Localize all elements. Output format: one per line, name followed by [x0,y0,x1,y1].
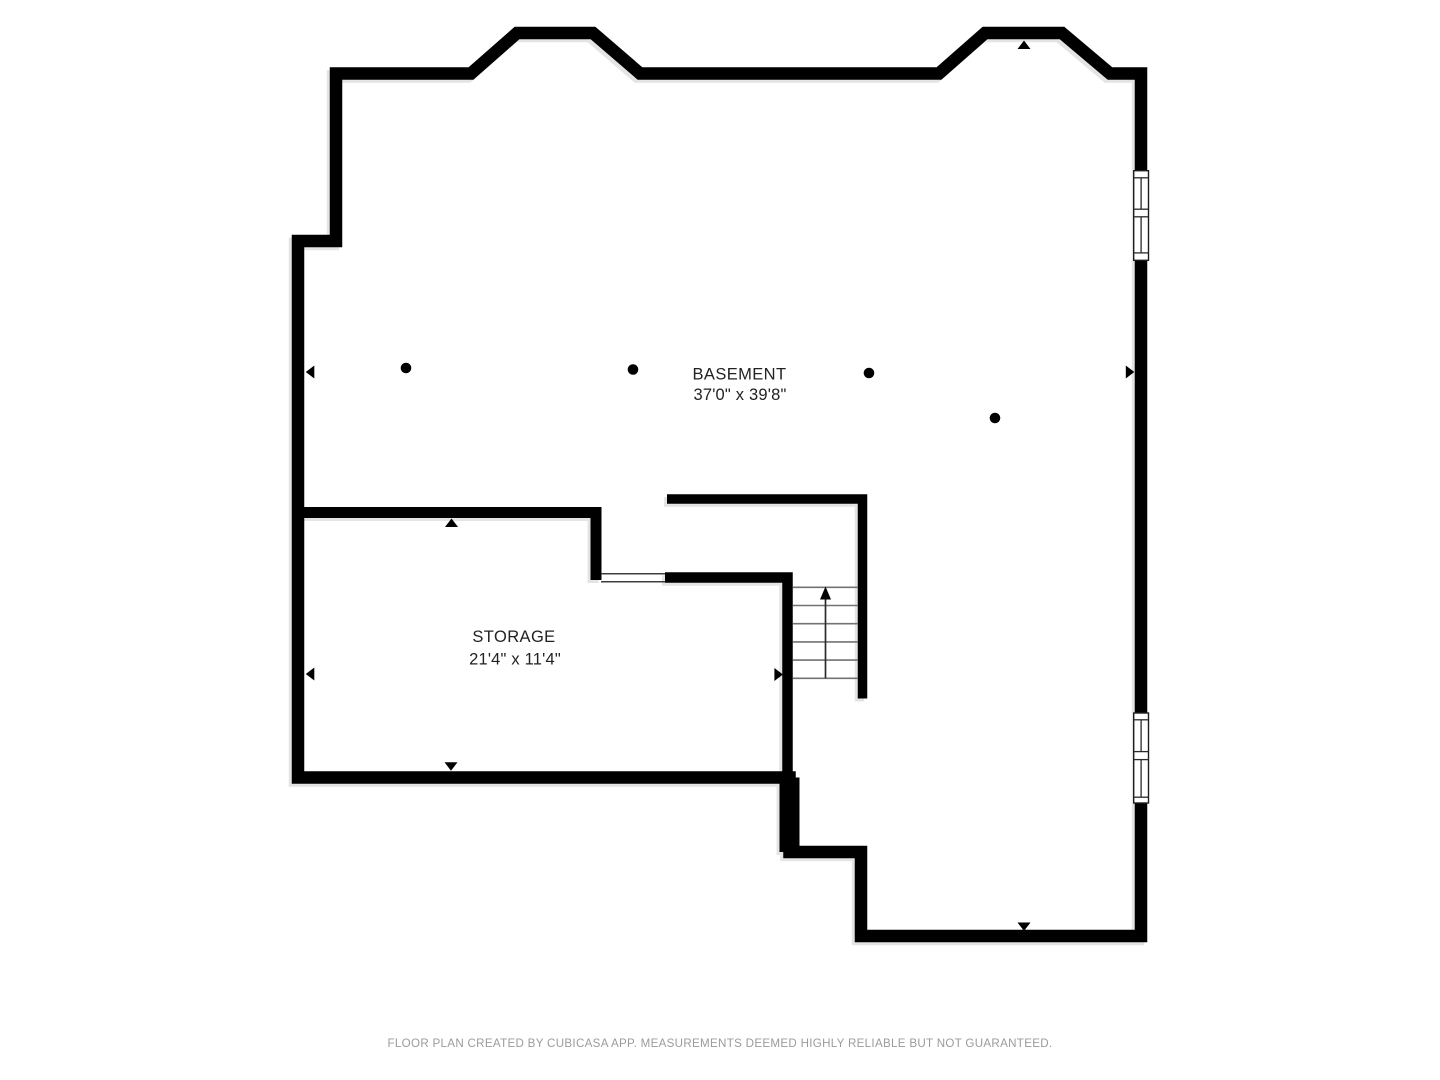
measure-arrow-down-icon [445,762,458,771]
window-icon [1134,713,1149,803]
window-icon [1134,171,1149,261]
column-dot [628,364,639,375]
door-opening [601,574,665,582]
room-label-storage: STORAGE 21'4" x 11'4" [469,628,561,669]
column-dot [990,413,1001,424]
measure-arrow-down-icon [1018,923,1031,932]
room-dimensions: 21'4" x 11'4" [469,651,561,669]
measure-arrows [306,41,1135,932]
measure-arrow-left-icon [306,366,315,379]
floor-plan-page: BASEMENT 37'0" x 39'8" STORAGE 21'4" x 1… [0,0,1440,1080]
column-dot [401,363,412,374]
room-name: BASEMENT [693,366,787,384]
column-dot [864,368,875,379]
room-label-basement: BASEMENT 37'0" x 39'8" [693,366,787,405]
floor-plan-canvas: BASEMENT 37'0" x 39'8" STORAGE 21'4" x 1… [0,0,1440,1080]
wall-shadow [295,36,1138,939]
stair-direction-arrow-icon [820,587,831,679]
footer-disclaimer: FLOOR PLAN CREATED BY CUBICASA APP. MEAS… [388,1037,1053,1050]
walls [298,33,1141,936]
measure-arrow-left-icon [306,668,315,681]
room-name: STORAGE [472,628,555,646]
stairs-icon [793,587,858,679]
room-dimensions: 37'0" x 39'8" [693,386,786,404]
